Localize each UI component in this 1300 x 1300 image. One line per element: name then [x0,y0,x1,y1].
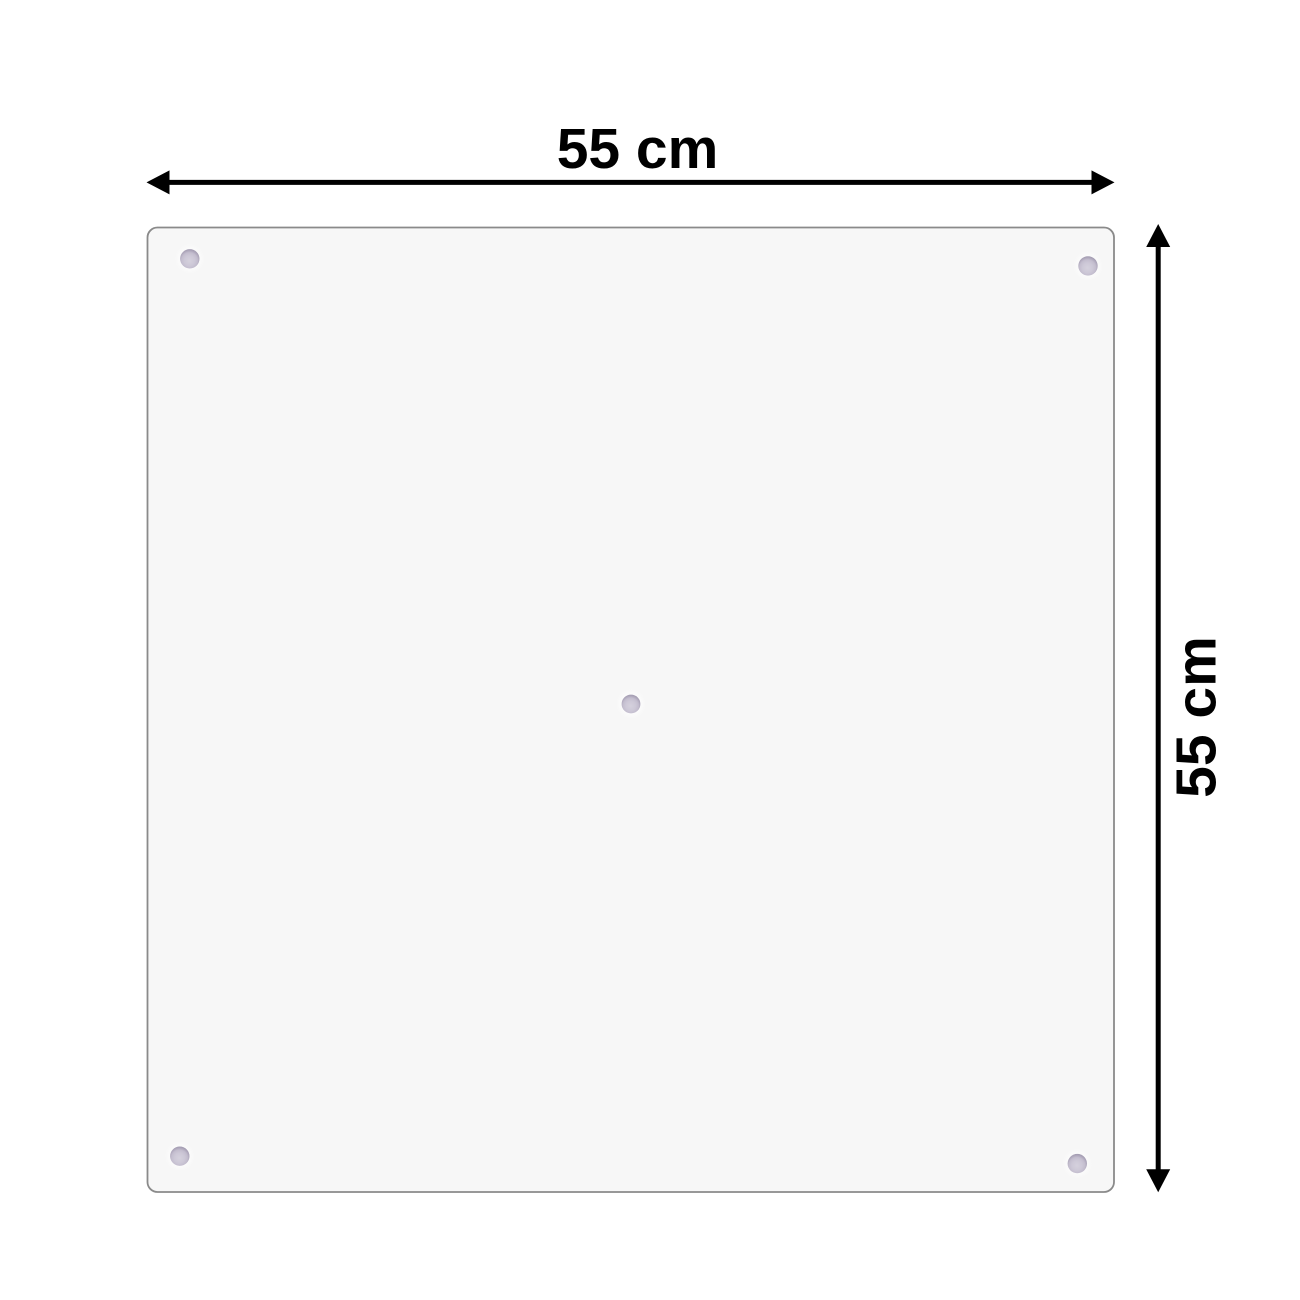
svg-text:55 cm: 55 cm [557,117,719,181]
svg-text:55 cm: 55 cm [1165,636,1229,798]
